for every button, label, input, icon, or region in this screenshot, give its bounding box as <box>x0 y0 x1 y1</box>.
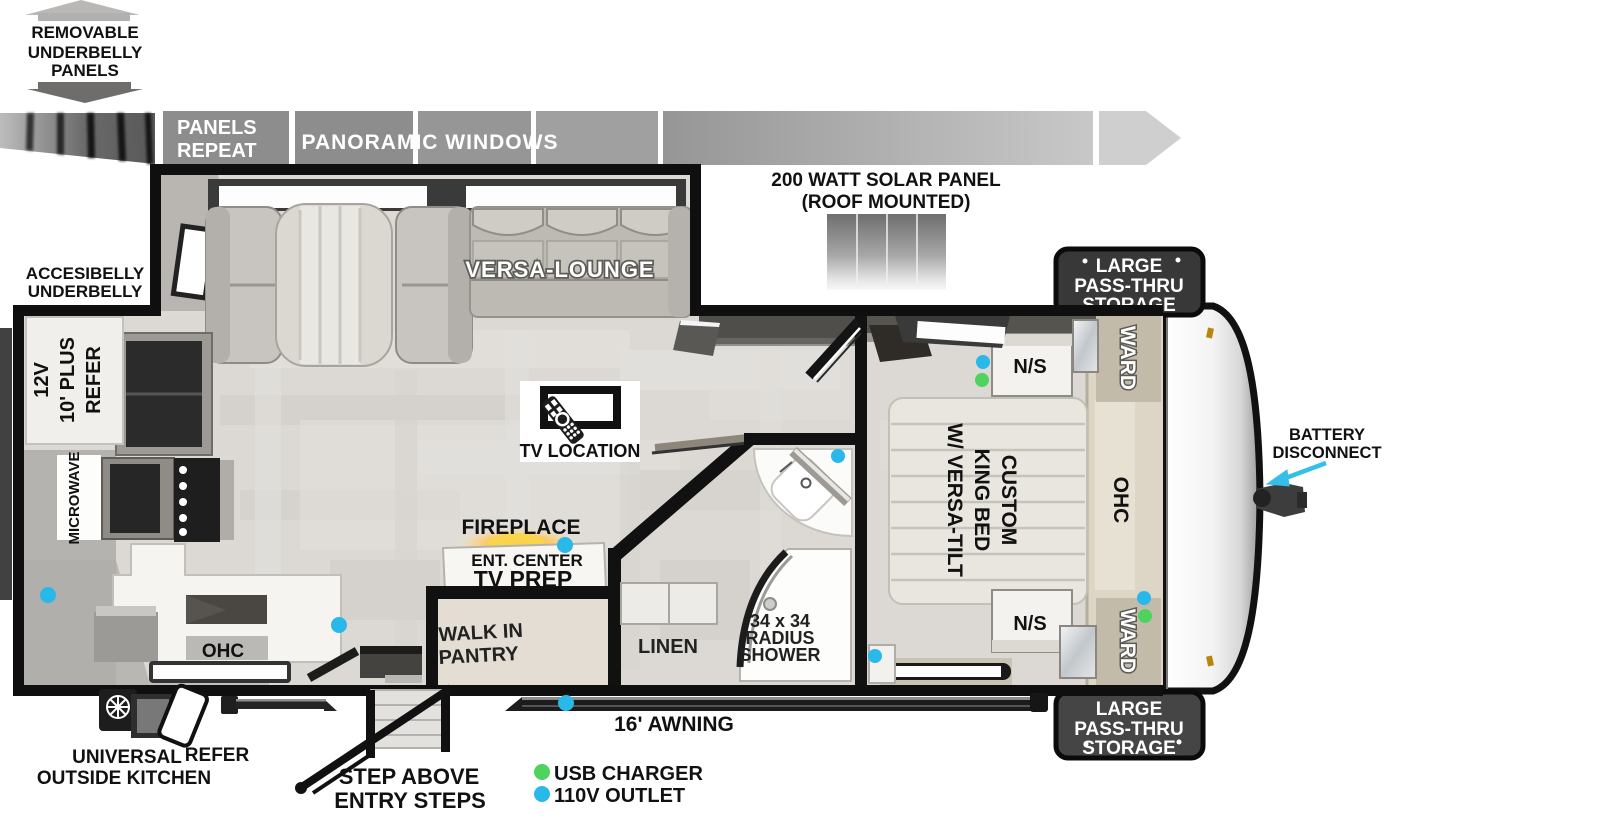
svg-text:LARGE: LARGE <box>1096 256 1163 277</box>
svg-text:LINEN: LINEN <box>638 636 698 658</box>
svg-text:USB CHARGER: USB CHARGER <box>554 763 703 785</box>
svg-text:PANORAMIC WINDOWS: PANORAMIC WINDOWS <box>302 131 559 154</box>
svg-text:UNIVERSAL: UNIVERSAL <box>72 747 182 768</box>
svg-text:REPEAT: REPEAT <box>177 140 257 162</box>
svg-text:N/S: N/S <box>1013 356 1046 378</box>
svg-text:REFER: REFER <box>185 745 250 766</box>
svg-text:PASS-THRU: PASS-THRU <box>1074 276 1183 297</box>
svg-text:ENTRY STEPS: ENTRY STEPS <box>334 788 486 813</box>
svg-text:WALK IN: WALK IN <box>438 620 523 646</box>
svg-text:WARD: WARD <box>1116 326 1139 390</box>
svg-text:FIREPLACE: FIREPLACE <box>461 516 580 539</box>
svg-text:TV LOCATION: TV LOCATION <box>520 441 641 461</box>
svg-text:N/S: N/S <box>1013 613 1046 635</box>
svg-text:OHC: OHC <box>202 641 245 662</box>
svg-text:STORAGE: STORAGE <box>1082 738 1176 759</box>
svg-text:110V OUTLET: 110V OUTLET <box>554 785 685 807</box>
svg-text:16' AWNING: 16' AWNING <box>614 713 734 736</box>
svg-text:PASS-THRU: PASS-THRU <box>1074 719 1183 740</box>
svg-text:OHC: OHC <box>1109 477 1132 524</box>
svg-text:REMOVABLE: REMOVABLE <box>31 23 138 42</box>
svg-text:PANELS: PANELS <box>177 117 257 139</box>
svg-text:SHOWER: SHOWER <box>740 645 821 665</box>
svg-text:PANTRY: PANTRY <box>438 643 520 669</box>
svg-text:ACCESIBELLY: ACCESIBELLY <box>26 264 145 283</box>
svg-text:BATTERY: BATTERY <box>1289 426 1365 444</box>
svg-text:DISCONNECT: DISCONNECT <box>1272 444 1381 462</box>
svg-text:(ROOF MOUNTED): (ROOF MOUNTED) <box>802 192 971 213</box>
svg-text:LARGE: LARGE <box>1096 699 1163 720</box>
svg-text:WARD: WARD <box>1116 609 1139 673</box>
svg-text:UNDERBELLY: UNDERBELLY <box>28 43 143 62</box>
svg-text:PANELS: PANELS <box>51 61 119 80</box>
svg-text:OUTSIDE KITCHEN: OUTSIDE KITCHEN <box>37 768 211 789</box>
svg-text:UNDERBELLY: UNDERBELLY <box>28 282 143 301</box>
svg-text:STEP ABOVE: STEP ABOVE <box>339 764 480 789</box>
svg-text:MICROWAVE: MICROWAVE <box>66 451 83 544</box>
svg-text:200 WATT SOLAR PANEL: 200 WATT SOLAR PANEL <box>771 170 1001 191</box>
svg-text:VERSA-LOUNGE: VERSA-LOUNGE <box>465 257 654 282</box>
